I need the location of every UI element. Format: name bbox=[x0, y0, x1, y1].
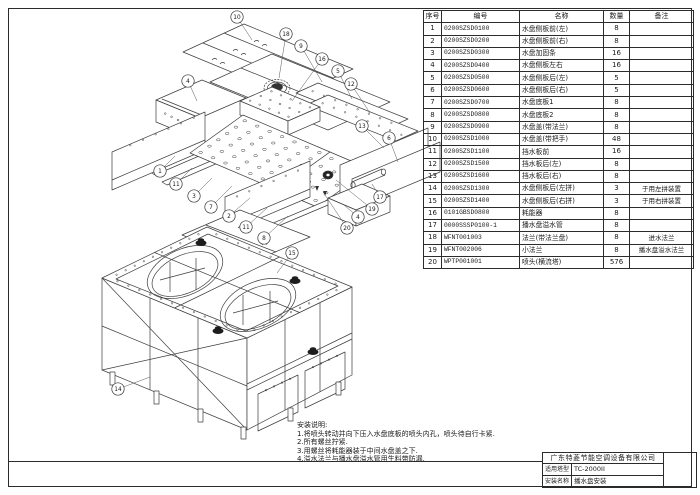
svg-text:19: 19 bbox=[368, 207, 376, 213]
parts-table-cell: 10 bbox=[424, 133, 442, 145]
parts-table-cell: 16 bbox=[604, 60, 630, 72]
parts-table-body: 10200SZSD0100水盘侧板前(左)820200SZSD0200水盘侧板前… bbox=[424, 23, 694, 269]
parts-table-cell: 播水盘溢水法兰 bbox=[630, 244, 694, 256]
svg-text:5: 5 bbox=[336, 69, 340, 75]
company-name: 广东特菱节能空调设备有限公司 bbox=[543, 453, 664, 464]
parts-table-cell: 8 bbox=[604, 220, 630, 232]
parts-table-cell: 播水盘溢水管 bbox=[520, 220, 604, 232]
parts-table-cell bbox=[630, 23, 694, 35]
parts-table-cell: 3 bbox=[604, 183, 630, 195]
parts-table-row: 130200SZSD1600挡水板后(右)8 bbox=[424, 170, 694, 182]
parts-table-row: 110200SZSD1100挡水板前16 bbox=[424, 146, 694, 158]
parts-table-cell bbox=[630, 47, 694, 59]
parts-table-cell: 8 bbox=[604, 158, 630, 170]
install-note-line: 4.溢水法兰与播水盘溢水管用生料带防漏. bbox=[297, 455, 495, 464]
parts-table-cell: 0200SZSD1400 bbox=[442, 195, 520, 207]
parts-table-cell bbox=[630, 97, 694, 109]
parts-table-cell: 16 bbox=[604, 146, 630, 158]
parts-table-cell: 13 bbox=[424, 170, 442, 182]
parts-table-cell: 2 bbox=[424, 35, 442, 47]
svg-text:14: 14 bbox=[114, 387, 122, 393]
parts-table-cell: 挡水板前 bbox=[520, 146, 604, 158]
parts-table-cell: 挡水板后(左) bbox=[520, 158, 604, 170]
parts-table-cell: 水盘侧板前(左) bbox=[520, 23, 604, 35]
small-flange-ring bbox=[323, 171, 333, 179]
model-value: TC-2000II bbox=[572, 464, 664, 476]
parts-table-cell: 8 bbox=[604, 244, 630, 256]
parts-table-row: 20200SZSD0200水盘侧板前(右)8 bbox=[424, 35, 694, 47]
assembly-view bbox=[102, 227, 352, 439]
parts-table-row: 90200SZSD0900水盘盖(带法兰)8 bbox=[424, 121, 694, 133]
exploded-front-panel-left bbox=[112, 112, 205, 190]
parts-table-row: 60200SZSD0600水盘侧板后(右)5 bbox=[424, 84, 694, 96]
bottom-divider-line bbox=[8, 461, 542, 462]
parts-table-cell: 于用左拼装置 bbox=[630, 183, 694, 195]
svg-text:1: 1 bbox=[158, 169, 162, 175]
parts-table-cell: 48 bbox=[604, 133, 630, 145]
parts-table-row: 19WFNT002006小法兰8播水盘溢水法兰 bbox=[424, 244, 694, 256]
parts-table-cell: 0000SSSP0100-1 bbox=[442, 220, 520, 232]
parts-table-cell: 0200SZSD0800 bbox=[442, 109, 520, 121]
svg-text:18: 18 bbox=[282, 32, 290, 38]
parts-table-cell: 水盘侧板后(左拼) bbox=[520, 183, 604, 195]
parts-table: 序号编号名称数量备注 10200SZSD0100水盘侧板前(左)820200SZ… bbox=[423, 10, 694, 269]
parts-table-cell: 0200SZSD0500 bbox=[442, 72, 520, 84]
parts-table-cell: 水盘盖(带把手) bbox=[520, 133, 604, 145]
svg-text:4: 4 bbox=[186, 79, 190, 85]
parts-table-column-header: 名称 bbox=[520, 11, 604, 23]
parts-table-cell: 水盘加固条 bbox=[520, 47, 604, 59]
parts-table-cell: 7 bbox=[424, 97, 442, 109]
parts-table-cell: 19 bbox=[424, 244, 442, 256]
svg-text:12: 12 bbox=[347, 82, 355, 88]
parts-table-cell bbox=[630, 170, 694, 182]
parts-table-cell bbox=[630, 72, 694, 84]
parts-table-cell bbox=[630, 256, 694, 268]
parts-table-cell bbox=[630, 35, 694, 47]
parts-table-cell: 0200SZSD1100 bbox=[442, 146, 520, 158]
parts-table-row: 20WPTP001001喷头(横流塔)576 bbox=[424, 256, 694, 268]
parts-table-header-row: 序号编号名称数量备注 bbox=[424, 11, 694, 23]
parts-table-row: 170000SSSP0100-1播水盘溢水管8 bbox=[424, 220, 694, 232]
install-name-label: 安装名称 bbox=[543, 476, 572, 488]
install-note-line: 2.所有螺丝拧紧. bbox=[297, 438, 495, 447]
parts-table-cell: 8 bbox=[604, 97, 630, 109]
parts-table-row: 10200SZSD0100水盘侧板前(左)8 bbox=[424, 23, 694, 35]
parts-table-cell: 0200SZSD0400 bbox=[442, 60, 520, 72]
parts-table-cell: 水盘侧板前(右) bbox=[520, 35, 604, 47]
svg-text:3: 3 bbox=[192, 194, 196, 200]
svg-text:6: 6 bbox=[387, 136, 391, 142]
parts-table-cell bbox=[630, 84, 694, 96]
parts-table-cell: 20 bbox=[424, 256, 442, 268]
parts-table-cell: 0200SZSD1500 bbox=[442, 158, 520, 170]
parts-table-row: 120200SZSD1500挡水板后(左)8 bbox=[424, 158, 694, 170]
parts-table-cell: 0200SZSD0200 bbox=[442, 35, 520, 47]
parts-table-cell: 水盘侧板左右 bbox=[520, 60, 604, 72]
parts-table-cell: 8 bbox=[604, 232, 630, 244]
parts-table-cell: 9 bbox=[424, 121, 442, 133]
parts-table-cell bbox=[630, 158, 694, 170]
parts-table-row: 18WFNT001003法兰(带法兰盘)8进水法兰 bbox=[424, 232, 694, 244]
parts-table-cell: 8 bbox=[424, 109, 442, 121]
install-notes: 安装说明: 1.将喷头转动并向下压入水盘底板的喷头内孔，喷头待自行卡紧.2.所有… bbox=[297, 421, 495, 464]
svg-text:2: 2 bbox=[227, 214, 231, 220]
parts-table-cell: 0200SZSD0300 bbox=[442, 47, 520, 59]
parts-table-cell bbox=[630, 133, 694, 145]
parts-table-cell: 耗能器 bbox=[520, 207, 604, 219]
parts-table-cell: 喷头(横流塔) bbox=[520, 256, 604, 268]
parts-table-cell: 8 bbox=[604, 23, 630, 35]
parts-table-cell: WFNT001003 bbox=[442, 232, 520, 244]
title-block-spare-cell bbox=[664, 453, 697, 488]
svg-text:16: 16 bbox=[318, 57, 326, 63]
parts-table-cell: 进水法兰 bbox=[630, 232, 694, 244]
parts-table-cell: 5 bbox=[604, 72, 630, 84]
parts-table-cell: 576 bbox=[604, 256, 630, 268]
parts-table-cell: 水盘底板2 bbox=[520, 109, 604, 121]
parts-table-row: 100200SZSD1000水盘盖(带把手)48 bbox=[424, 133, 694, 145]
balloon-3: 3 bbox=[188, 178, 212, 202]
parts-table-cell: 12 bbox=[424, 158, 442, 170]
parts-table-cell bbox=[630, 207, 694, 219]
parts-table-row: 80200SZSD0800水盘底板28 bbox=[424, 109, 694, 121]
parts-table-cell: 水盘侧板后(左) bbox=[520, 72, 604, 84]
parts-table-cell: 0200SZSD0900 bbox=[442, 121, 520, 133]
parts-table-row: 150200SZSD1400水盘侧板后(右拼)3于用右拼装置 bbox=[424, 195, 694, 207]
parts-table-cell: 16 bbox=[604, 47, 630, 59]
parts-table-column-header: 数量 bbox=[604, 11, 630, 23]
parts-table-cell: 8 bbox=[604, 109, 630, 121]
parts-table-cell: 8 bbox=[604, 170, 630, 182]
parts-table-cell: 挡水板后(右) bbox=[520, 170, 604, 182]
svg-text:13: 13 bbox=[358, 124, 366, 130]
parts-table-cell: 0200SZSD1000 bbox=[442, 133, 520, 145]
install-name-value: 播水盘安装 bbox=[572, 476, 664, 488]
parts-table-cell: 8 bbox=[604, 35, 630, 47]
parts-table-cell: 小法兰 bbox=[520, 244, 604, 256]
parts-table-cell: 16 bbox=[424, 207, 442, 219]
parts-table-row: 40200SZSD0400水盘侧板左右16 bbox=[424, 60, 694, 72]
parts-table-cell: 0200SZSD0600 bbox=[442, 84, 520, 96]
parts-table-cell: 水盘侧板后(右) bbox=[520, 84, 604, 96]
parts-table-cell: 14 bbox=[424, 183, 442, 195]
parts-table-cell: 4 bbox=[424, 60, 442, 72]
parts-table-cell: 法兰(带法兰盘) bbox=[520, 232, 604, 244]
svg-text:11: 11 bbox=[242, 225, 250, 231]
parts-table-cell bbox=[630, 109, 694, 121]
svg-text:17: 17 bbox=[376, 195, 384, 201]
parts-table-column-header: 编号 bbox=[442, 11, 520, 23]
install-notes-lines: 1.将喷头转动并向下压入水盘底板的喷头内孔，喷头待自行卡紧.2.所有螺丝拧紧.3… bbox=[297, 430, 495, 464]
parts-table-cell: WFNT002006 bbox=[442, 244, 520, 256]
drawing-sheet: 1018916512413611137211817194201415 序号编号名… bbox=[0, 0, 700, 495]
parts-table-row: 30200SZSD0300水盘加固条16 bbox=[424, 47, 694, 59]
parts-table-cell: 3 bbox=[424, 47, 442, 59]
parts-table-cell: 0101GBSD0800 bbox=[442, 207, 520, 219]
parts-table-cell bbox=[630, 146, 694, 158]
parts-table-cell: 18 bbox=[424, 232, 442, 244]
parts-table-row: 50200SZSD0500水盘侧板后(左)5 bbox=[424, 72, 694, 84]
parts-table-cell: 水盘底板1 bbox=[520, 97, 604, 109]
install-note-line: 1.将喷头转动并向下压入水盘底板的喷头内孔，喷头待自行卡紧. bbox=[297, 430, 495, 439]
svg-text:9: 9 bbox=[299, 44, 303, 50]
svg-text:20: 20 bbox=[343, 226, 351, 232]
parts-table-cell: 1 bbox=[424, 23, 442, 35]
parts-table-cell: 8 bbox=[604, 121, 630, 133]
svg-text:7: 7 bbox=[209, 205, 213, 211]
parts-table-cell: 6 bbox=[424, 84, 442, 96]
parts-table-cell: 5 bbox=[424, 72, 442, 84]
parts-table-cell: 0200SZSD1600 bbox=[442, 170, 520, 182]
svg-text:11: 11 bbox=[172, 182, 180, 188]
parts-table-row: 70200SZSD0700水盘底板18 bbox=[424, 97, 694, 109]
model-label: 适用塔型 bbox=[543, 464, 572, 476]
parts-table-cell: 水盘盖(带法兰) bbox=[520, 121, 604, 133]
parts-table-cell: 15 bbox=[424, 195, 442, 207]
parts-table-cell: 17 bbox=[424, 220, 442, 232]
svg-text:15: 15 bbox=[288, 251, 296, 257]
balloon-11: 11 bbox=[170, 168, 192, 190]
svg-text:4: 4 bbox=[356, 215, 360, 221]
svg-text:8: 8 bbox=[262, 236, 266, 242]
parts-table-cell: 于用右拼装置 bbox=[630, 195, 694, 207]
install-notes-title: 安装说明: bbox=[297, 421, 495, 430]
parts-table-row: 160101GBSD0800耗能器8 bbox=[424, 207, 694, 219]
parts-table-cell: 11 bbox=[424, 146, 442, 158]
parts-table-column-header: 备注 bbox=[630, 11, 694, 23]
parts-table-cell: 5 bbox=[604, 84, 630, 96]
parts-table-cell bbox=[630, 121, 694, 133]
parts-table-cell bbox=[630, 220, 694, 232]
parts-table-cell: 3 bbox=[604, 195, 630, 207]
parts-table-column-header: 序号 bbox=[424, 11, 442, 23]
parts-table-cell bbox=[630, 60, 694, 72]
parts-table-cell: 水盘侧板后(右拼) bbox=[520, 195, 604, 207]
parts-table-cell: 0200SZSD0100 bbox=[442, 23, 520, 35]
parts-table-cell: WPTP001001 bbox=[442, 256, 520, 268]
svg-text:10: 10 bbox=[233, 15, 241, 21]
parts-table-row: 140200SZSD1300水盘侧板后(左拼)3于用左拼装置 bbox=[424, 183, 694, 195]
parts-table-cell: 8 bbox=[604, 207, 630, 219]
parts-table-cell: 0200SZSD0700 bbox=[442, 97, 520, 109]
title-block: 广东特菱节能空调设备有限公司 适用塔型 TC-2000II 安装名称 播水盘安装 bbox=[542, 452, 697, 488]
parts-table-cell: 0200SZSD1300 bbox=[442, 183, 520, 195]
